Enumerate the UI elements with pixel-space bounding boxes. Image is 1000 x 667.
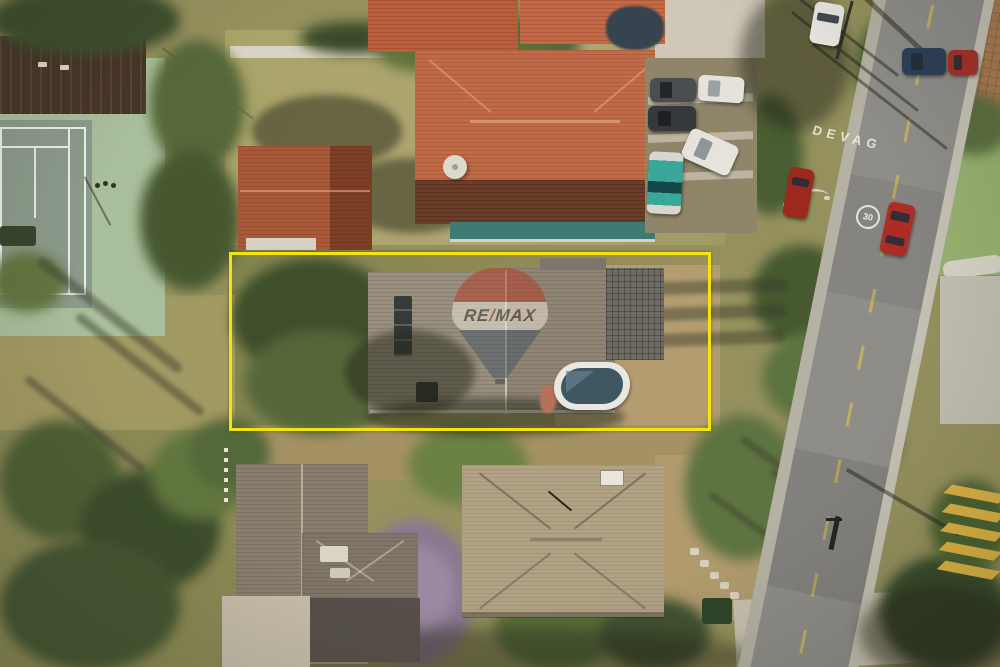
pergola-chair xyxy=(60,65,69,70)
brand-max: MAX xyxy=(494,306,537,325)
remax-balloon-watermark: RE/MAX xyxy=(449,268,551,386)
driveway-south-west xyxy=(222,596,310,667)
streetlight-lamp xyxy=(824,196,830,200)
teal-car-parked xyxy=(646,151,683,215)
stepping-stone xyxy=(730,592,739,599)
dark-pool-north xyxy=(606,6,664,50)
dark-blue-car xyxy=(902,48,946,75)
speed-limit-value: 30 xyxy=(862,211,874,223)
white-fence-posts xyxy=(224,448,228,506)
car-windshield xyxy=(707,80,720,97)
balloon-basket xyxy=(495,379,505,384)
crosswalk-bar xyxy=(940,523,1000,542)
car-windshield xyxy=(660,82,672,98)
north-house-roof-shadow-face xyxy=(415,180,655,224)
concrete-pad-east xyxy=(940,276,1000,424)
small-house-ridge xyxy=(240,190,370,192)
car-windshield xyxy=(658,111,671,126)
crosswalk-bar xyxy=(942,504,1000,523)
trees-top-left xyxy=(0,0,180,55)
stepping-stone xyxy=(720,582,729,589)
stepping-stone xyxy=(700,560,709,567)
small-house-gable-shadow xyxy=(330,146,372,250)
north-house-ridge xyxy=(470,120,620,123)
van-windshield xyxy=(817,12,840,24)
car-windshield xyxy=(954,55,962,70)
car-windshield xyxy=(911,53,923,70)
dark-suv-parked xyxy=(648,106,696,131)
watermark-brand-text: RE/MAX xyxy=(448,305,552,327)
bushes-south-west xyxy=(0,540,180,667)
pergola-chair xyxy=(38,62,47,67)
court-floodlight xyxy=(95,183,100,188)
white-car-parked xyxy=(697,74,745,103)
car-windshield xyxy=(791,177,809,188)
stepping-stone xyxy=(710,572,719,579)
balloon-bottom-dark xyxy=(457,330,543,378)
court-floodlight xyxy=(103,181,108,186)
water-heater-panel xyxy=(330,568,350,578)
south-house-roof xyxy=(462,465,664,617)
roof-piece-top-left xyxy=(368,0,518,52)
veranda-awning-teal xyxy=(450,222,655,240)
small-house-porch xyxy=(246,238,316,250)
green-bin xyxy=(702,598,732,624)
crosswalk-bar xyxy=(938,542,1000,561)
balloon-top-red xyxy=(452,268,548,302)
water-heater-panel xyxy=(320,546,348,562)
south-west-gable-dark xyxy=(302,598,420,662)
crosswalk-bar xyxy=(937,561,1000,580)
satellite-dish-feed xyxy=(452,164,458,170)
trees-west-strip xyxy=(140,150,240,290)
court-bench xyxy=(0,226,36,246)
south-house-skylight xyxy=(600,470,624,486)
tennis-court-center-line xyxy=(34,148,36,218)
veranda-edge xyxy=(450,239,655,242)
brand-re: RE xyxy=(463,306,491,325)
stepping-stone xyxy=(690,548,699,555)
car-windshield xyxy=(890,210,910,223)
car-windshield xyxy=(693,137,713,161)
gray-car-parked xyxy=(650,78,696,102)
tennis-court-singles-line xyxy=(68,129,70,293)
aerial-photo: DEVAG 30 RE/MAX xyxy=(0,0,1000,667)
south-house-eave-shadow xyxy=(462,612,664,618)
red-car-corner xyxy=(948,50,978,75)
utility-pole-crossarm xyxy=(826,518,842,521)
car-rear-window xyxy=(885,235,905,247)
court-floodlight xyxy=(111,183,116,188)
south-house-ridge xyxy=(530,538,602,541)
